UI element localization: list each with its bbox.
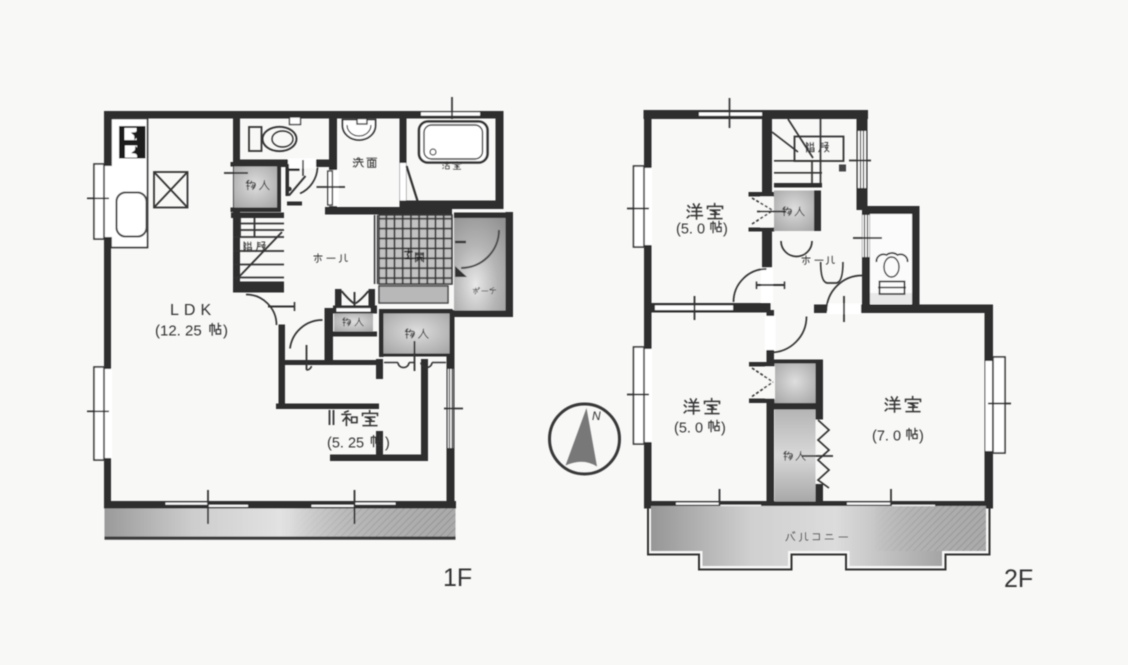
svg-text:(5. 25: (5. 25 — [327, 436, 364, 452]
svg-text:): ) — [223, 323, 228, 340]
svg-text:): ) — [919, 429, 924, 445]
svg-text:1F: 1F — [443, 564, 472, 592]
svg-text:(5. 0: (5. 0 — [676, 222, 705, 238]
svg-text:(12. 25: (12. 25 — [155, 323, 202, 340]
svg-text:N: N — [592, 409, 601, 423]
svg-text:(5. 0: (5. 0 — [674, 421, 703, 437]
svg-text:LDK: LDK — [170, 302, 216, 319]
svg-text:): ) — [385, 436, 390, 452]
svg-text:(7. 0: (7. 0 — [872, 429, 901, 445]
svg-text:): ) — [723, 222, 728, 238]
svg-text:2F: 2F — [1004, 565, 1033, 593]
svg-text:): ) — [721, 421, 726, 437]
